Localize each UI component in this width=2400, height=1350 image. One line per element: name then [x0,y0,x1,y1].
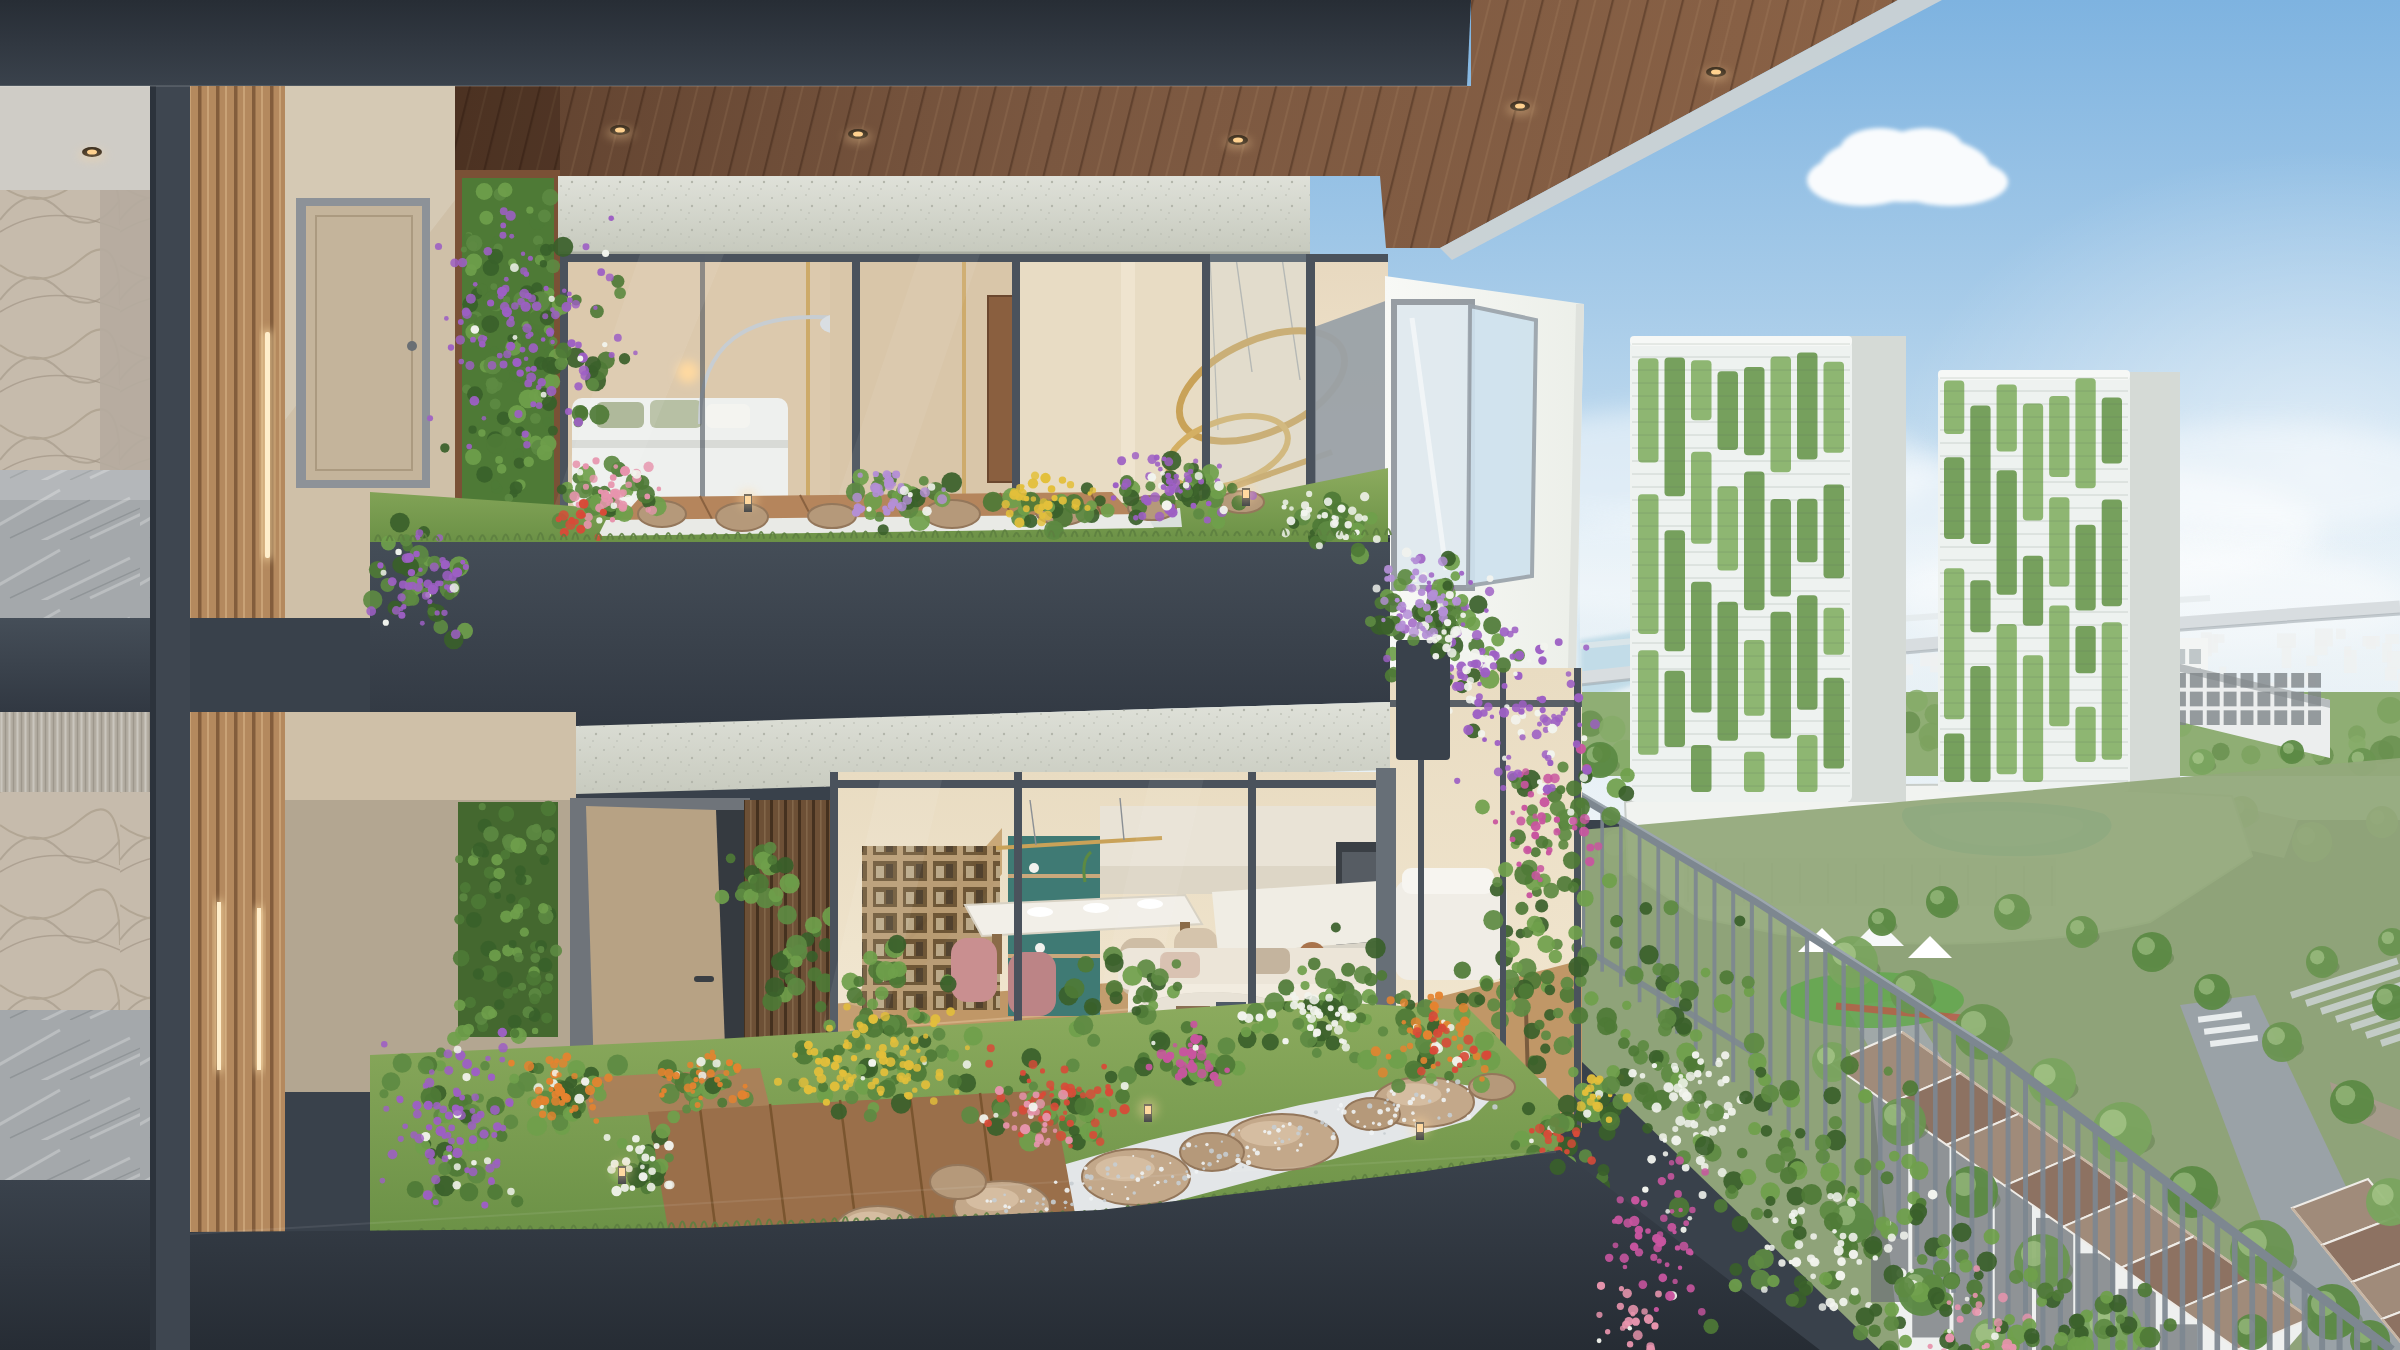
flower [936,1069,944,1077]
flower [1373,584,1381,592]
leaf [1765,1196,1775,1206]
flower [1113,482,1119,488]
flower [1454,778,1460,784]
flower [1614,1215,1623,1224]
flower [1583,645,1589,651]
tower-green-stripe [1718,602,1739,741]
flower [381,570,387,576]
window [2257,673,2270,688]
flower [1190,1034,1199,1043]
flower [1510,654,1516,660]
flower [383,1106,389,1112]
flower [504,313,509,318]
flower [868,1059,876,1067]
flower [911,1036,919,1044]
flower [405,582,413,590]
flower [1460,612,1466,618]
flower [602,342,607,347]
leaf [884,1025,895,1036]
greenwall-leaf [541,1012,552,1023]
flower [1640,1073,1646,1079]
leaf [1341,963,1355,977]
pebble [1299,1143,1303,1147]
flower [1660,1215,1668,1223]
lobby-bottom-slab [0,1180,150,1350]
leaf [1910,1203,1927,1220]
flower [608,481,615,488]
flower [1049,1093,1054,1098]
leaf [530,413,541,424]
boulder [930,1165,986,1199]
distant-building [2385,667,2397,680]
door-handle-upper [407,341,417,351]
flower [1500,785,1506,791]
leaf [1889,1151,1900,1162]
greenwall-leaf [508,1015,522,1029]
tree-highlight [2199,979,2215,995]
tower-green-stripe [1944,381,1964,435]
flower [423,1190,433,1200]
baluster [1731,890,1735,1082]
greenwall-leaf [532,1028,538,1034]
flower [695,1102,701,1108]
flower [574,1094,584,1104]
pebble [1133,1191,1136,1194]
pebble [1467,1090,1469,1092]
flower [866,506,871,511]
flower [579,499,589,509]
pebble [1132,1155,1134,1157]
flower [427,415,433,421]
leaf [1491,1011,1509,1029]
leaf [514,457,525,468]
flower [1791,1257,1801,1267]
flower [1158,467,1163,472]
flower [1586,1084,1594,1092]
leaf [1365,938,1386,959]
pebble [1337,1108,1340,1111]
flower [551,1096,560,1105]
pillow-white [706,404,750,428]
pebble [1245,1146,1249,1150]
greenwall-leaf [526,971,541,986]
greenwall-leaf [463,1024,474,1035]
leaf [1780,1146,1796,1162]
flower [1623,1219,1632,1228]
flower [1046,1081,1054,1089]
flower [1490,662,1498,670]
flower [1402,1020,1407,1025]
pebble [1003,1204,1007,1208]
flower [1452,1067,1458,1073]
flower [1672,1066,1679,1073]
flower [498,1043,507,1052]
flower [366,606,376,616]
leaf [477,284,488,295]
distant-building [2315,628,2333,646]
flower [558,510,568,520]
leaf [1535,899,1548,912]
leaf [863,951,877,965]
tree-highlight [2372,1184,2394,1206]
leaf [1899,1335,1912,1348]
flower [1672,1230,1676,1234]
flower [878,1091,883,1096]
flower [1662,1138,1667,1143]
flower [1532,729,1542,739]
pebble [1420,1094,1425,1099]
flower [1955,1304,1961,1310]
pebble [1088,1186,1092,1190]
leaf [1541,1030,1551,1040]
flower [690,1082,697,1089]
baluster [1988,1054,1993,1329]
leaf [1815,1135,1831,1151]
leaf [1522,1102,1535,1115]
flower [1513,672,1518,677]
leaf [1550,1159,1566,1175]
pebble [1070,1202,1074,1206]
flower [1655,1291,1662,1298]
leaf [1622,1001,1631,1010]
flower [1191,503,1197,509]
flower [1481,1065,1489,1073]
leaf [1331,923,1341,933]
flower [592,1077,602,1087]
leaf [1557,761,1568,772]
flower [504,277,509,282]
flower [1505,765,1511,771]
pebble [1356,1120,1359,1123]
flower [514,410,522,418]
leaf [1193,508,1204,519]
greenwall-leaf [510,837,526,853]
leaf [1300,981,1309,990]
flower [1687,1216,1692,1221]
flower [1330,520,1338,528]
flower [561,1093,569,1101]
window [2291,710,2304,725]
flower [1121,1082,1129,1090]
flower [1407,584,1416,593]
flower [619,504,627,512]
flower [654,1143,660,1149]
leaf [1669,1197,1690,1218]
tower-right [1938,370,2180,792]
greenwall-leaf [526,207,533,214]
leaf [1378,1026,1388,1036]
flower [908,492,913,497]
flower [1679,1242,1688,1251]
flower [491,1132,497,1138]
baluster [1712,879,1716,1066]
leaf [1351,543,1366,558]
pebble [1274,1142,1277,1145]
flower [1119,1104,1129,1114]
flower [1009,490,1019,500]
flower [630,470,636,476]
leaf [1936,1247,1949,1260]
leaf [1959,1259,1972,1272]
flower [418,567,423,572]
flower [1832,1229,1837,1234]
flower [1633,1330,1643,1340]
pebble [1235,1158,1240,1163]
flower [471,1160,477,1166]
flower [1460,1017,1469,1026]
flower [1256,1013,1264,1021]
flower [528,331,534,337]
greenwall-leaf [489,881,501,893]
leaf [1118,1066,1137,1085]
flower [1033,1091,1040,1098]
leaf [2138,1283,2153,1298]
flower [488,1074,495,1081]
flower [963,1060,972,1069]
leaf [1365,616,1376,627]
flower [1699,1191,1707,1199]
baluster [2197,1210,2203,1350]
flower [1043,501,1053,511]
pebble [1306,1133,1309,1136]
flower [1675,1116,1685,1126]
leaf [548,426,558,436]
leaf [1483,616,1501,634]
pebble [1209,1149,1214,1154]
leaf [2100,1291,2113,1304]
flower [1109,1109,1117,1117]
pebble [1288,1122,1292,1126]
baluster [2023,1080,2028,1350]
leaf [749,874,769,894]
flower [1144,497,1152,505]
leaf [1875,1161,1885,1171]
flower [1532,814,1537,819]
flower [507,1188,514,1195]
leaf [1864,1236,1882,1254]
distant-building [2387,651,2400,669]
window [2190,692,2203,707]
flower [1510,836,1516,842]
leaf [619,353,630,364]
greenwall-leaf [479,803,486,810]
flower [1617,1196,1624,1203]
flower [1996,1327,2001,1332]
flower [1697,1058,1704,1065]
leaf [1675,1017,1692,1034]
leaf [1767,1275,1779,1287]
flower [1543,774,1553,784]
pebble [1272,1125,1277,1130]
flower [1020,1070,1026,1076]
flower [1160,471,1165,476]
flower [1387,996,1395,1004]
leaf [1869,1303,1882,1316]
flower [610,488,620,498]
flower [1540,707,1546,713]
leaf [1531,847,1541,857]
flower [1031,472,1039,480]
flower [1490,715,1494,719]
flower [1493,819,1498,824]
flower [1605,1254,1613,1262]
flower [1151,1041,1155,1045]
pebble [1447,1113,1452,1118]
flower [1531,821,1541,831]
flower [1012,1111,1017,1116]
leaf [2116,1315,2125,1324]
baluster [1805,936,1809,1150]
flower [1652,1103,1662,1113]
flower [1810,1274,1816,1280]
pebble [1105,1166,1110,1171]
flower [1061,1066,1069,1074]
leaf [1944,1274,1960,1290]
flower [1837,1240,1844,1247]
flower [1050,1103,1058,1111]
flower [1430,1002,1439,1011]
flower [714,1077,720,1083]
leaf [855,1064,866,1075]
leaf [1820,1163,1839,1182]
flower [1529,1128,1535,1134]
tower-green-stripe [1691,360,1712,420]
flower [1538,656,1546,664]
flower [1692,1051,1699,1058]
flower [1669,1160,1674,1165]
leaf [1620,1029,1630,1039]
tower-green-stripe [1797,735,1818,792]
leaf [961,1106,979,1124]
leaf [480,1061,490,1071]
flower [1672,1126,1678,1132]
flower [1567,809,1574,816]
tower-green-stripe [1944,568,1964,719]
flower [450,583,459,592]
leaf [875,986,889,1000]
flower [611,1186,621,1196]
flower [596,517,602,523]
flower [1310,1006,1319,1015]
pebble [1492,1104,1497,1109]
flower [1378,1068,1388,1078]
flower [1691,1121,1699,1129]
flower [583,463,589,469]
flower [1480,668,1490,678]
flower [1617,1303,1624,1310]
dining-chair-blush-1 [951,938,997,1002]
flower [446,1145,453,1152]
window [2224,692,2237,707]
leaf [805,917,822,934]
scene-canvas [0,0,2400,1350]
flower [1665,1209,1670,1214]
flower [930,1014,940,1024]
leaf [1658,1009,1677,1028]
flower [657,487,662,492]
flower [454,1163,461,1170]
pebble [989,1200,992,1203]
flower [510,263,519,272]
pebble [1164,1180,1168,1184]
leaf [1292,1018,1304,1030]
flower [645,507,651,513]
lamp-glow [612,1161,632,1181]
flower [1976,1301,1983,1308]
greenwall-leaf [514,953,524,963]
flower [1994,1318,2003,1327]
lobby-upper-stone-pillar [100,190,150,470]
flower [395,549,401,555]
window [2207,673,2220,688]
flower [1587,1074,1597,1084]
flower [399,607,404,612]
flower [1417,1067,1426,1076]
pebble [1205,1143,1208,1146]
flower [1423,1030,1433,1040]
flower [1672,1279,1677,1284]
flower [1590,1094,1596,1100]
window [2257,692,2270,707]
flower [1597,1338,1602,1343]
flower [567,339,575,347]
flower [488,1177,494,1183]
flower [1847,1198,1856,1207]
flower [825,1059,830,1064]
flower [1526,892,1532,898]
flower [823,1099,830,1106]
leaf [1620,768,1635,783]
leaf [2069,1314,2085,1330]
flower [402,1123,408,1129]
flower [1058,1090,1068,1100]
leaf [1577,890,1594,907]
downlight-glow [844,131,872,143]
tree-highlight [1884,1104,1906,1126]
flower [859,505,865,511]
flower [453,1181,461,1189]
pebble [1277,1147,1281,1151]
leaf [777,857,794,874]
greenwall-leaf [538,958,552,972]
flower [444,316,449,321]
leaf [1706,1103,1724,1121]
flower [412,1101,421,1110]
downlight-glow [78,149,106,161]
leaf [1151,968,1169,986]
pebble [1231,1133,1235,1137]
flower [1326,1024,1332,1030]
flower [1652,1063,1657,1068]
flower [1190,1021,1197,1028]
tower-green-stripe [1744,640,1765,716]
flower [508,1060,515,1067]
leaf [1961,1304,1971,1314]
flower [1641,1308,1648,1315]
flower [614,334,622,342]
pebble [1064,1207,1066,1209]
flower [1133,515,1138,520]
flower [520,347,526,353]
greenwall-leaf [468,241,477,250]
flower [922,506,932,516]
flower [422,592,430,600]
leaf [1597,1164,1609,1176]
flower [1698,1080,1703,1085]
leaf [1602,1076,1620,1094]
leaf [1629,967,1642,980]
flower [1502,683,1508,689]
